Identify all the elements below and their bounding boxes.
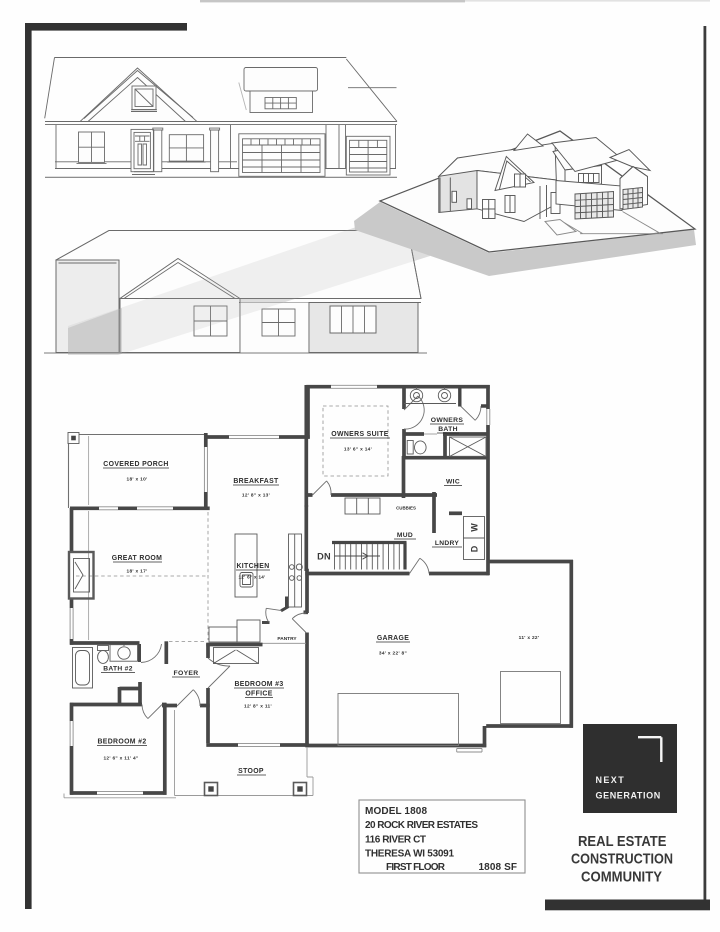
- svg-text:BATH #2: BATH #2: [103, 666, 132, 673]
- svg-text:LNDRY: LNDRY: [435, 540, 460, 547]
- svg-text:STOOP: STOOP: [238, 768, 264, 775]
- svg-text:D: D: [470, 545, 480, 552]
- svg-text:GREAT ROOM: GREAT ROOM: [112, 555, 162, 562]
- svg-text:REAL ESTATE: REAL ESTATE: [578, 833, 667, 850]
- svg-text:MODEL 1808: MODEL 1808: [365, 806, 427, 817]
- svg-text:BEDROOM #3: BEDROOM #3: [234, 681, 283, 688]
- svg-text:OWNERS: OWNERS: [431, 417, 464, 424]
- svg-text:DN: DN: [317, 552, 331, 562]
- svg-text:18' x 10': 18' x 10': [127, 477, 148, 483]
- svg-text:116 RIVER CT: 116 RIVER CT: [365, 834, 426, 845]
- svg-text:PANTRY: PANTRY: [277, 636, 297, 642]
- svg-text:MUD: MUD: [397, 532, 413, 539]
- svg-text:12' 6" x 11' 4": 12' 6" x 11' 4": [103, 756, 138, 762]
- svg-text:20 ROCK RIVER ESTATES: 20 ROCK RIVER ESTATES: [365, 820, 478, 831]
- svg-text:GENERATION: GENERATION: [596, 791, 661, 801]
- svg-text:FOYER: FOYER: [174, 670, 199, 677]
- svg-text:COVERED PORCH: COVERED PORCH: [103, 461, 168, 468]
- svg-text:BATH: BATH: [438, 426, 458, 433]
- svg-text:18' x 17': 18' x 17': [127, 569, 148, 575]
- svg-text:GARAGE: GARAGE: [377, 635, 409, 642]
- svg-text:KITCHEN: KITCHEN: [236, 563, 269, 570]
- svg-text:CONSTRUCTION: CONSTRUCTION: [571, 851, 673, 868]
- svg-text:CUBBIES: CUBBIES: [396, 506, 416, 511]
- svg-text:12' 8" x 11': 12' 8" x 11': [244, 704, 272, 710]
- svg-text:BREAKFAST: BREAKFAST: [233, 478, 279, 485]
- svg-text:13' 6" x 14': 13' 6" x 14': [344, 447, 372, 453]
- svg-text:1808 SF: 1808 SF: [479, 862, 518, 873]
- svg-text:12' 8" x 13': 12' 8" x 13': [242, 493, 270, 499]
- svg-text:BEDROOM #2: BEDROOM #2: [97, 739, 146, 746]
- svg-text:THERESA WI 53091: THERESA WI 53091: [365, 848, 454, 859]
- svg-text:FIRST FLOOR: FIRST FLOOR: [386, 862, 446, 873]
- svg-text:12' 6" x 14': 12' 6" x 14': [238, 575, 265, 580]
- svg-text:COMMUNITY: COMMUNITY: [581, 869, 662, 886]
- svg-text:11' x 22': 11' x 22': [519, 635, 540, 641]
- svg-text:WIC: WIC: [446, 479, 460, 486]
- svg-text:W: W: [470, 523, 480, 532]
- svg-text:OFFICE: OFFICE: [245, 691, 272, 698]
- svg-text:NEXT: NEXT: [596, 775, 626, 785]
- svg-text:34' x 22' 8": 34' x 22' 8": [379, 651, 407, 657]
- svg-text:OWNERS SUITE: OWNERS SUITE: [331, 431, 388, 438]
